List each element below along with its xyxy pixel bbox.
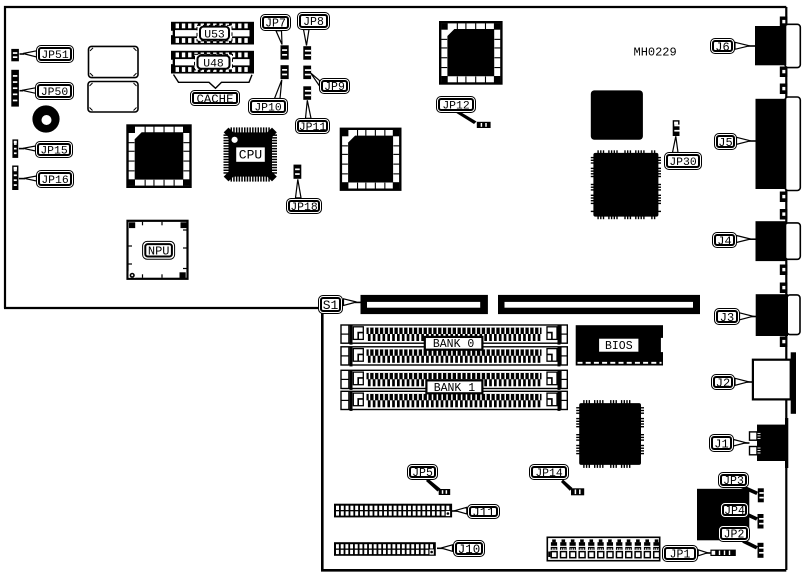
svg-text:JP9: JP9 xyxy=(324,81,345,94)
svg-text:BANK 0: BANK 0 xyxy=(433,338,475,351)
svg-text:U48: U48 xyxy=(203,58,224,70)
svg-text:JP30: JP30 xyxy=(669,157,697,169)
svg-text:JP2: JP2 xyxy=(724,529,745,542)
svg-text:JP10: JP10 xyxy=(254,103,282,115)
svg-text:J1: J1 xyxy=(714,437,728,451)
svg-text:J3: J3 xyxy=(720,311,734,325)
svg-text:JP5: JP5 xyxy=(412,467,433,480)
svg-text:J4: J4 xyxy=(717,234,731,248)
svg-text:BANK 1: BANK 1 xyxy=(434,382,476,395)
svg-text:JP4: JP4 xyxy=(724,505,745,518)
svg-text:J10: J10 xyxy=(458,543,481,557)
svg-text:NPU: NPU xyxy=(148,245,170,259)
svg-text:U53: U53 xyxy=(204,29,225,41)
svg-text:BIOS: BIOS xyxy=(605,340,633,353)
svg-text:J2: J2 xyxy=(716,376,730,390)
svg-text:JP15: JP15 xyxy=(40,146,68,158)
svg-text:CPU: CPU xyxy=(239,147,262,162)
svg-text:JP3: JP3 xyxy=(723,475,744,488)
svg-text:JP12: JP12 xyxy=(442,101,470,113)
svg-text:CACHE: CACHE xyxy=(197,92,234,106)
svg-text:JP11: JP11 xyxy=(299,122,327,134)
svg-text:JP16: JP16 xyxy=(41,175,69,187)
svg-text:MH0229: MH0229 xyxy=(634,45,677,59)
svg-text:JP51: JP51 xyxy=(41,50,69,62)
svg-text:JP14: JP14 xyxy=(535,468,563,480)
svg-text:JP1: JP1 xyxy=(670,549,691,562)
svg-text:JP50: JP50 xyxy=(41,87,69,99)
svg-text:J5: J5 xyxy=(718,136,732,150)
svg-text:JP18: JP18 xyxy=(290,202,318,214)
svg-text:JP7: JP7 xyxy=(265,18,286,31)
svg-text:JP8: JP8 xyxy=(303,16,324,29)
svg-text:J6: J6 xyxy=(715,40,729,54)
svg-text:J11: J11 xyxy=(472,506,495,520)
svg-text:S1: S1 xyxy=(323,298,339,313)
